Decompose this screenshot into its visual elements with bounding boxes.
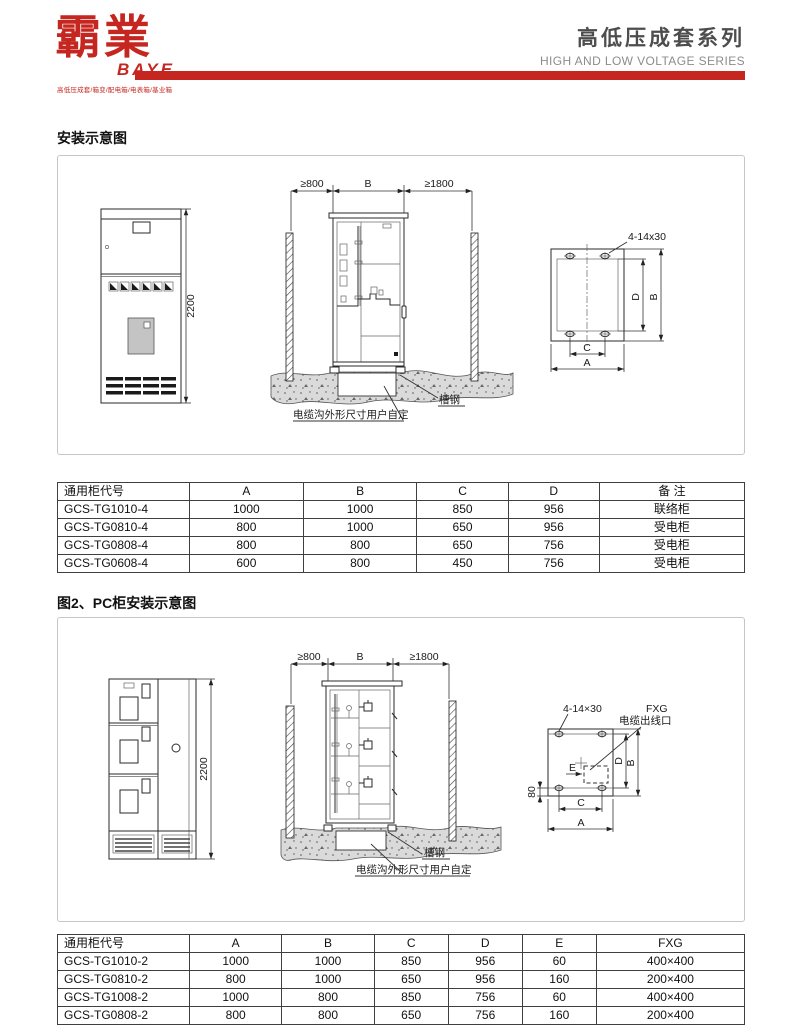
table-cell: 956: [448, 971, 522, 989]
dim-80-label: 80: [526, 786, 538, 798]
dim-800-label: ≥800: [300, 178, 323, 190]
logo-cn-text: 霸業: [55, 14, 153, 60]
table-cell: 160: [522, 1007, 596, 1025]
header-logo: 霸業 BAYE 高低压成套/箱变/配电箱/电表箱/基业箱: [55, 14, 153, 60]
table-cell: 200×400: [596, 971, 744, 989]
table-row: GCS-TG1008-2100080085075660400×400: [58, 989, 745, 1007]
table-cell: GCS-TG0810-4: [58, 519, 190, 537]
bolt-spec-label: 4-14x30: [628, 231, 666, 243]
column-header: B: [303, 483, 417, 501]
table-cell: 756: [448, 1007, 522, 1025]
cable-trench-pit: [336, 831, 386, 850]
column-header: 通用柜代号: [58, 483, 190, 501]
table-row: GCS-TG0808-2800800650756160200×400: [58, 1007, 745, 1025]
table-cell: 800: [282, 989, 374, 1007]
dim-b-label: B: [364, 178, 371, 190]
table-cell: 956: [508, 501, 599, 519]
height-dimension: 2200: [181, 209, 197, 403]
page-title-cn: 高低压成套系列: [540, 22, 745, 52]
dim-1800-label: ≥1800: [424, 178, 453, 190]
column-header: A: [190, 935, 282, 953]
section2-title: 图2、PC柜安装示意图: [57, 593, 196, 613]
table-cell: GCS-TG1008-2: [58, 989, 190, 1007]
column-header: A: [190, 483, 304, 501]
table-row: GCS-TG0810-28001000650956160200×400: [58, 971, 745, 989]
column-header: B: [282, 935, 374, 953]
dim-800-label: ≥800: [297, 651, 320, 663]
table-cell: 受电柜: [599, 555, 744, 573]
front-view-cabinet: 2200: [101, 209, 197, 403]
figure1-box: 2200 ≥800 B ≥1800: [57, 155, 745, 455]
cable-trench-label: 电缆沟外形尺寸用户自定: [356, 863, 472, 876]
table-row: GCS-TG1010-410001000850956联络柜: [58, 501, 745, 519]
table-cell: 956: [508, 519, 599, 537]
table-cell: 850: [374, 953, 448, 971]
cable-trench-label: 电缆沟外形尺寸用户自定: [293, 408, 409, 421]
wall-hatch-right: [471, 233, 478, 381]
page-title-en: HIGH AND LOW VOLTAGE SERIES: [540, 54, 745, 68]
table-cell: 650: [417, 519, 508, 537]
spec-table-2: 通用柜代号ABCDEFXG GCS-TG1010-210001000850956…: [57, 934, 745, 1025]
table-cell: GCS-TG0810-2: [58, 971, 190, 989]
wall-hatch-right: [449, 701, 456, 841]
table-cell: 800: [190, 537, 304, 555]
table-cell: 1000: [190, 501, 304, 519]
table-cell: 400×400: [596, 989, 744, 1007]
table-cell: 联络柜: [599, 501, 744, 519]
table-cell: GCS-TG1010-4: [58, 501, 190, 519]
dim-c-label: C: [583, 342, 591, 354]
column-header: D: [448, 935, 522, 953]
channel-steel-label: 槽钢: [439, 393, 460, 406]
table-row: GCS-TG0608-4600800450756受电柜: [58, 555, 745, 573]
column-header: 通用柜代号: [58, 935, 190, 953]
figure2-box: 2200 ≥800 B ≥1800: [57, 617, 745, 922]
dim-b-label: B: [356, 651, 363, 663]
table-cell: 850: [417, 501, 508, 519]
section-cabinet: [329, 213, 408, 373]
plan-view: 4-14x30 D B C A: [551, 231, 666, 372]
table-cell: 756: [508, 537, 599, 555]
section-view: ≥800 B ≥1800: [281, 651, 501, 876]
table-cell: 956: [448, 953, 522, 971]
table-cell: 650: [417, 537, 508, 555]
table-cell: 800: [303, 537, 417, 555]
plan-view: E 4-14×30 FXG 电缆出线口 D B 80 C: [526, 703, 672, 832]
fxg-label: FXG: [646, 703, 668, 715]
logo-tagline: 高低压成套/箱变/配电箱/电表箱/基业箱: [57, 84, 172, 94]
bolt-spec-label: 4-14×30: [563, 703, 602, 715]
dim-1800-label: ≥1800: [409, 651, 438, 663]
table-cell: 800: [190, 519, 304, 537]
column-header: D: [508, 483, 599, 501]
table-cell: 800: [190, 971, 282, 989]
table-cell: 1000: [282, 953, 374, 971]
table-cell: GCS-TG0808-4: [58, 537, 190, 555]
table-cell: 800: [190, 1007, 282, 1025]
front-view-cabinet: 2200: [109, 679, 215, 859]
section-view: ≥800 B ≥1800: [271, 178, 513, 421]
page-title-block: 高低压成套系列 HIGH AND LOW VOLTAGE SERIES: [540, 22, 745, 68]
table-cell: 800: [282, 1007, 374, 1025]
column-header: C: [417, 483, 508, 501]
table-cell: 800: [303, 555, 417, 573]
table-cell: 850: [374, 989, 448, 1007]
dim-c-label: C: [577, 797, 585, 809]
dim-d-label: D: [630, 293, 642, 301]
cable-outlet-label: 电缆出线口: [619, 714, 672, 727]
table-cell: 60: [522, 953, 596, 971]
table-cell: 1000: [303, 519, 417, 537]
dim-2200-label: 2200: [185, 294, 197, 318]
spec-table-1: 通用柜代号ABCD备 注 GCS-TG1010-410001000850956联…: [57, 482, 745, 573]
dim-a-label: A: [577, 817, 584, 829]
dim-b2-label: B: [648, 293, 660, 300]
table-cell: 450: [417, 555, 508, 573]
table-cell: 1000: [190, 989, 282, 1007]
table-cell: 756: [448, 989, 522, 1007]
table-cell: GCS-TG1010-2: [58, 953, 190, 971]
table-cell: 受电柜: [599, 537, 744, 555]
channel-steel-label: 槽钢: [424, 846, 445, 859]
column-header: E: [522, 935, 596, 953]
column-header: FXG: [596, 935, 744, 953]
table-row: GCS-TG0810-48001000650956受电柜: [58, 519, 745, 537]
table-cell: 1000: [190, 953, 282, 971]
height-dimension: 2200: [196, 679, 215, 859]
table-header-row: 通用柜代号ABCDEFXG: [58, 935, 745, 953]
table-cell: 60: [522, 989, 596, 1007]
table-cell: 650: [374, 1007, 448, 1025]
vent-louvers: [106, 377, 176, 395]
figure2-drawing: 2200 ≥800 B ≥1800: [58, 618, 744, 921]
table-cell: 1000: [303, 501, 417, 519]
table-header-row: 通用柜代号ABCD备 注: [58, 483, 745, 501]
table-cell: GCS-TG0808-2: [58, 1007, 190, 1025]
wall-hatch-left: [286, 233, 293, 381]
table-row: GCS-TG1010-21000100085095660400×400: [58, 953, 745, 971]
table-cell: 160: [522, 971, 596, 989]
dim-d-label: D: [613, 757, 625, 765]
dim-2200-label: 2200: [198, 757, 210, 781]
table-cell: 650: [374, 971, 448, 989]
section1-title: 安装示意图: [57, 128, 127, 148]
section-cabinet: [322, 681, 402, 831]
table-cell: 受电柜: [599, 519, 744, 537]
table-cell: 756: [508, 555, 599, 573]
table-cell: 400×400: [596, 953, 744, 971]
table-cell: 1000: [282, 971, 374, 989]
dim-a-label: A: [583, 357, 590, 369]
wall-hatch-left: [286, 706, 294, 838]
table-cell: GCS-TG0608-4: [58, 555, 190, 573]
dim-e-label: E: [569, 762, 576, 774]
table-cell: 600: [190, 555, 304, 573]
column-header: 备 注: [599, 483, 744, 501]
table-cell: 200×400: [596, 1007, 744, 1025]
column-header: C: [374, 935, 448, 953]
dim-b2-label: B: [625, 759, 637, 766]
table-row: GCS-TG0808-4800800650756受电柜: [58, 537, 745, 555]
figure1-drawing: 2200 ≥800 B ≥1800: [58, 156, 744, 454]
header-red-bar: [135, 71, 745, 80]
